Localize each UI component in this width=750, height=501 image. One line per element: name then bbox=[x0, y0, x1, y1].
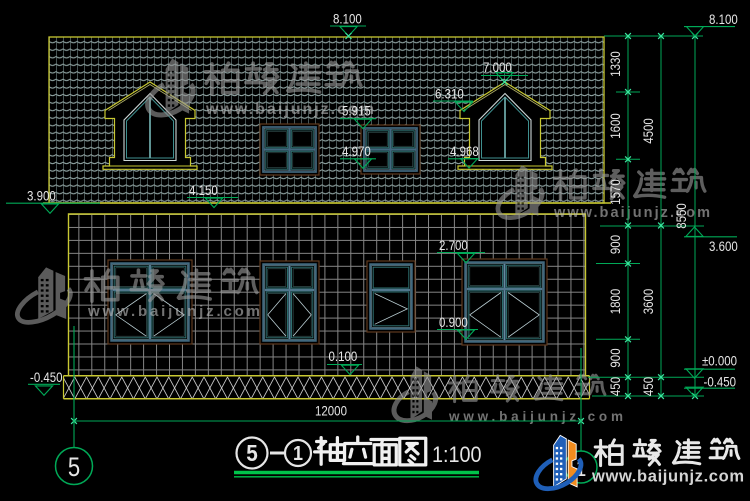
svg-text:3.600: 3.600 bbox=[709, 238, 738, 254]
svg-text:0.100: 0.100 bbox=[329, 348, 358, 364]
svg-text:3600: 3600 bbox=[640, 289, 656, 315]
svg-text:12000: 12000 bbox=[315, 402, 347, 418]
svg-text:4.970: 4.970 bbox=[342, 143, 371, 159]
svg-text:450: 450 bbox=[607, 377, 623, 396]
svg-text:8.100: 8.100 bbox=[333, 10, 362, 26]
svg-text:900: 900 bbox=[607, 348, 623, 367]
svg-text:4500: 4500 bbox=[640, 118, 656, 144]
svg-text:450: 450 bbox=[640, 377, 656, 396]
svg-text:8550: 8550 bbox=[673, 203, 689, 229]
svg-text:1570: 1570 bbox=[607, 179, 623, 205]
svg-text:6.310: 6.310 bbox=[435, 85, 464, 101]
svg-text:-0.450: -0.450 bbox=[30, 369, 63, 385]
svg-text:2.700: 2.700 bbox=[439, 237, 468, 253]
svg-text:1330: 1330 bbox=[607, 51, 623, 77]
svg-text:3.900: 3.900 bbox=[27, 187, 56, 203]
svg-text:1: 1 bbox=[293, 443, 303, 465]
svg-text:900: 900 bbox=[607, 235, 623, 254]
svg-text:5: 5 bbox=[246, 440, 258, 466]
svg-text:www.baijunjz.com: www.baijunjz.com bbox=[591, 468, 744, 486]
svg-text:4.968: 4.968 bbox=[450, 143, 479, 159]
svg-text:±0.000: ±0.000 bbox=[702, 352, 737, 368]
svg-text:4.150: 4.150 bbox=[189, 182, 218, 198]
svg-text:1800: 1800 bbox=[607, 289, 623, 315]
svg-text:-0.450: -0.450 bbox=[704, 373, 737, 389]
svg-text:1600: 1600 bbox=[607, 113, 623, 139]
svg-text:8.100: 8.100 bbox=[709, 11, 738, 27]
svg-text:1:100: 1:100 bbox=[432, 443, 482, 467]
svg-text:5: 5 bbox=[68, 453, 80, 483]
svg-text:0.900: 0.900 bbox=[439, 314, 468, 330]
svg-text:5.915: 5.915 bbox=[342, 102, 371, 118]
